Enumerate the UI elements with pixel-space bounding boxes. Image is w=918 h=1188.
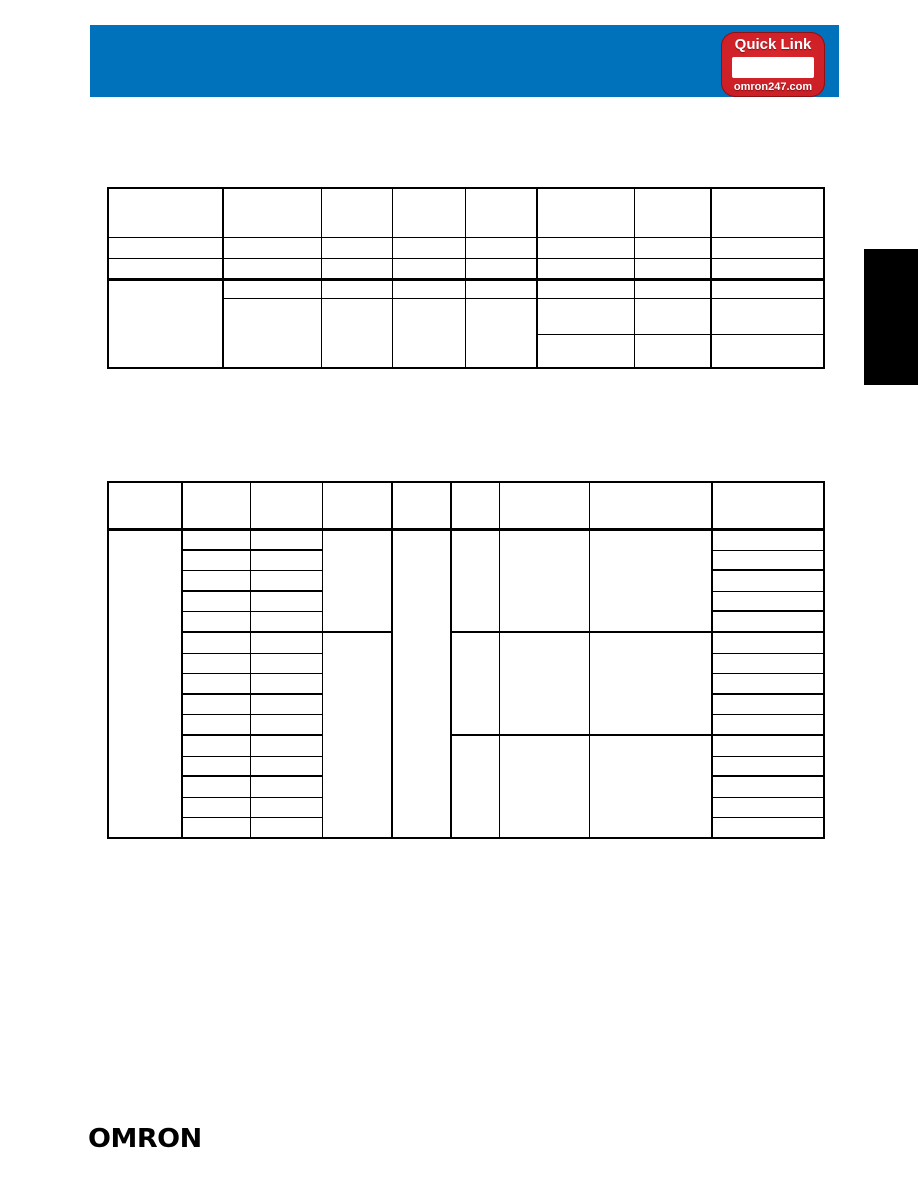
grid-cell	[451, 529, 499, 632]
grid-cell	[182, 653, 250, 673]
grid-cell	[711, 298, 824, 334]
grid-cell	[182, 591, 250, 611]
section-tab	[864, 249, 918, 385]
grid-cell	[182, 776, 250, 797]
grid-cell	[250, 797, 322, 817]
grid-cell	[634, 237, 711, 258]
grid-cell	[321, 258, 392, 279]
grid-cell	[465, 298, 537, 368]
grid-cell	[250, 550, 322, 570]
grid-cell	[711, 334, 824, 368]
ordering-table	[107, 481, 825, 839]
grid-cell	[250, 632, 322, 653]
grid-cell	[712, 673, 824, 694]
grid-cell	[250, 673, 322, 694]
grid-cell	[108, 258, 223, 279]
grid-cell	[711, 279, 824, 298]
grid-cell	[634, 334, 711, 368]
grid-cell	[537, 237, 634, 258]
grid-cell	[250, 714, 322, 735]
grid-cell	[392, 482, 451, 529]
grid-cell	[465, 279, 537, 298]
grid-cell	[223, 279, 321, 298]
table-row	[108, 188, 824, 237]
grid-cell	[634, 279, 711, 298]
grid-cell	[634, 188, 711, 237]
grid-cell	[589, 632, 712, 735]
grid-cell	[392, 237, 465, 258]
grid-cell	[634, 298, 711, 334]
grid-cell	[250, 776, 322, 797]
grid-cell	[321, 237, 392, 258]
grid-cell	[250, 756, 322, 776]
grid-cell	[223, 237, 321, 258]
grid-cell	[321, 188, 392, 237]
grid-cell	[589, 529, 712, 632]
grid-cell	[499, 735, 589, 838]
grid-cell	[712, 611, 824, 632]
grid-cell	[711, 188, 824, 237]
grid-cell	[250, 529, 322, 550]
grid-cell	[108, 529, 182, 838]
grid-cell	[182, 529, 250, 550]
grid-cell	[465, 188, 537, 237]
grid-cell	[322, 632, 392, 838]
spec-table	[107, 187, 825, 369]
grid-cell	[250, 570, 322, 591]
page-root: Quick Link omron247.com	[0, 0, 918, 1188]
grid-cell	[182, 570, 250, 591]
grid-cell	[182, 797, 250, 817]
grid-cell	[392, 188, 465, 237]
grid-cell	[712, 694, 824, 714]
grid-cell	[712, 591, 824, 611]
grid-cell	[537, 298, 634, 334]
grid-cell	[451, 735, 499, 838]
grid-cell	[451, 632, 499, 735]
grid-cell	[182, 817, 250, 838]
grid-cell	[182, 550, 250, 570]
grid-cell	[182, 694, 250, 714]
grid-cell	[451, 482, 499, 529]
grid-cell	[392, 279, 465, 298]
grid-cell	[712, 632, 824, 653]
grid-cell	[392, 529, 451, 838]
grid-cell	[712, 756, 824, 776]
grid-cell	[589, 735, 712, 838]
grid-cell	[712, 570, 824, 591]
grid-cell	[499, 632, 589, 735]
grid-cell	[182, 673, 250, 694]
table-row	[108, 735, 824, 756]
grid-cell	[182, 611, 250, 632]
grid-cell	[634, 258, 711, 279]
grid-cell	[250, 817, 322, 838]
grid-cell	[322, 482, 392, 529]
table-row	[108, 529, 824, 550]
grid-cell	[108, 279, 223, 368]
grid-cell	[108, 237, 223, 258]
grid-cell	[392, 258, 465, 279]
table-row	[108, 279, 824, 298]
table-row	[108, 632, 824, 653]
quick-link-box[interactable]	[732, 57, 814, 78]
quick-link-badge[interactable]: Quick Link omron247.com	[721, 32, 825, 97]
grid-cell	[223, 258, 321, 279]
grid-cell	[108, 482, 182, 529]
quick-link-url: omron247.com	[721, 81, 825, 93]
grid-cell	[250, 694, 322, 714]
grid-cell	[537, 279, 634, 298]
grid-cell	[223, 298, 321, 368]
grid-cell	[589, 482, 712, 529]
grid-cell	[182, 735, 250, 756]
grid-cell	[712, 735, 824, 756]
grid-cell	[250, 591, 322, 611]
grid-cell	[537, 188, 634, 237]
grid-cell	[712, 653, 824, 673]
omron-logo: OMRON	[88, 1124, 202, 1153]
grid-cell	[321, 279, 392, 298]
grid-cell	[108, 188, 223, 237]
grid-cell	[711, 237, 824, 258]
grid-cell	[499, 482, 589, 529]
grid-cell	[712, 776, 824, 797]
grid-cell	[182, 632, 250, 653]
grid-cell	[182, 714, 250, 735]
grid-cell	[465, 237, 537, 258]
table-row	[108, 482, 824, 529]
grid-cell	[537, 258, 634, 279]
grid-cell	[223, 188, 321, 237]
table-row	[108, 258, 824, 279]
grid-cell	[250, 482, 322, 529]
grid-cell	[712, 550, 824, 570]
grid-cell	[711, 258, 824, 279]
grid-cell	[250, 653, 322, 673]
quick-link-title: Quick Link	[721, 37, 825, 53]
grid-cell	[712, 482, 824, 529]
grid-cell	[499, 529, 589, 632]
grid-cell	[322, 529, 392, 632]
grid-cell	[250, 611, 322, 632]
grid-cell	[182, 756, 250, 776]
grid-cell	[465, 258, 537, 279]
table-row	[108, 237, 824, 258]
grid-cell	[182, 482, 250, 529]
grid-cell	[712, 714, 824, 735]
grid-cell	[250, 735, 322, 756]
grid-cell	[392, 298, 465, 368]
grid-cell	[321, 298, 392, 368]
grid-cell	[712, 529, 824, 550]
grid-cell	[537, 334, 634, 368]
grid-cell	[712, 797, 824, 817]
grid-cell	[712, 817, 824, 838]
